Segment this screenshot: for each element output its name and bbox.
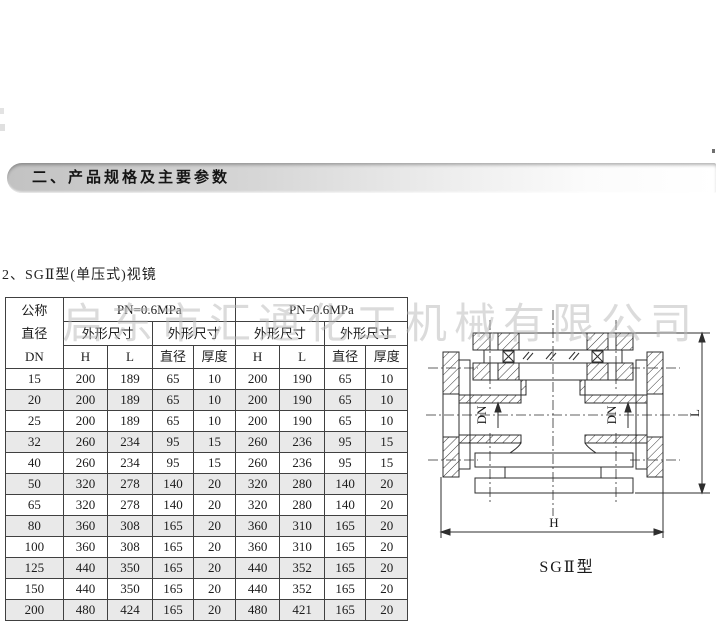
table-cell: 278	[108, 495, 153, 516]
table-cell: 480	[63, 600, 108, 621]
table-cell: 280	[280, 474, 325, 495]
table-cell: 310	[280, 516, 325, 537]
table-cell: 360	[63, 537, 108, 558]
table-cell: 95	[152, 453, 194, 474]
table-cell: 20	[366, 474, 408, 495]
table-header-row: 外形尺寸 外形尺寸 外形尺寸 外形尺寸	[6, 322, 408, 346]
table-cell: 20	[194, 600, 236, 621]
table-cell: 95	[152, 432, 194, 453]
table-cell: 20	[194, 579, 236, 600]
table-cell: 234	[108, 453, 153, 474]
table-cell: 308	[108, 537, 153, 558]
table-cell: 95	[324, 432, 366, 453]
table-cell: 350	[108, 558, 153, 579]
table-cell: 10	[194, 369, 236, 390]
table-cell: 440	[63, 579, 108, 600]
column-header-cell: 直径	[152, 346, 194, 369]
section-header-bar: 二、产品规格及主要参数	[7, 163, 716, 193]
table-cell: 421	[280, 600, 325, 621]
table-cell: 190	[280, 390, 325, 411]
table-cell: 10	[194, 390, 236, 411]
table-cell: 15	[366, 432, 408, 453]
table-cell: 236	[280, 432, 325, 453]
table-cell: 65	[152, 411, 194, 432]
table-cell: 65	[324, 411, 366, 432]
table-cell: 20	[194, 537, 236, 558]
table-cell: 32	[6, 432, 64, 453]
table-cell: 15	[194, 432, 236, 453]
dn-header-line: 公称	[6, 299, 63, 322]
table-cell: 50	[6, 474, 64, 495]
table-cell: 352	[280, 558, 325, 579]
table-row: 2004804241652048042116520	[6, 600, 408, 621]
table-cell: 125	[6, 558, 64, 579]
dn-header-cell: 公称 直径 DN	[6, 298, 64, 369]
table-cell: 234	[108, 432, 153, 453]
table-cell: 278	[108, 474, 153, 495]
table-cell: 95	[324, 453, 366, 474]
column-header-cell: H	[235, 346, 280, 369]
column-header-cell: L	[280, 346, 325, 369]
table-cell: 190	[280, 411, 325, 432]
table-cell: 20	[366, 495, 408, 516]
table-cell: 15	[6, 369, 64, 390]
table-cell: 200	[63, 411, 108, 432]
scan-artifact	[0, 124, 5, 131]
l-dim-label: L	[687, 409, 702, 417]
table-cell: 40	[6, 453, 64, 474]
column-header-cell: 厚度	[194, 346, 236, 369]
table-cell: 20	[366, 600, 408, 621]
table-cell: 200	[235, 390, 280, 411]
catalog-page: 二、产品规格及主要参数 2、SGⅡ型(单压式)视镜 启东市汇通化工机械有限公司 …	[0, 0, 716, 625]
table-cell: 165	[152, 579, 194, 600]
table-cell: 150	[6, 579, 64, 600]
table-cell: 200	[63, 369, 108, 390]
table-row: 4026023495152602369515	[6, 453, 408, 474]
table-cell: 20	[194, 516, 236, 537]
subgroup-header-cell: 外形尺寸	[324, 322, 407, 346]
table-cell: 65	[152, 390, 194, 411]
table-cell: 20	[366, 516, 408, 537]
table-cell: 165	[324, 516, 366, 537]
table-cell: 320	[63, 495, 108, 516]
technical-drawing: DN DN L H	[418, 298, 716, 553]
h-dim-label: H	[549, 515, 558, 530]
table-cell: 200	[235, 369, 280, 390]
table-cell: 20	[194, 474, 236, 495]
table-row: 1254403501652044035216520	[6, 558, 408, 579]
table-cell: 360	[235, 537, 280, 558]
table-cell: 440	[235, 579, 280, 600]
table-cell: 165	[324, 537, 366, 558]
table-header-row: 公称 直径 DN PN=0.6MPa PN=0.6MPa	[6, 298, 408, 322]
table-cell: 165	[324, 579, 366, 600]
table-cell: 440	[63, 558, 108, 579]
table-cell: 10	[194, 411, 236, 432]
dn-dim-label: DN	[474, 405, 489, 424]
table-cell: 190	[280, 369, 325, 390]
table-cell: 480	[235, 600, 280, 621]
dn-header-line: DN	[6, 345, 63, 368]
scan-artifact	[0, 108, 4, 114]
table-cell: 310	[280, 537, 325, 558]
table-cell: 65	[324, 369, 366, 390]
table-cell: 350	[108, 579, 153, 600]
table-cell: 200	[235, 411, 280, 432]
left-flange	[443, 352, 470, 477]
table-cell: 189	[108, 390, 153, 411]
scan-artifact	[712, 149, 715, 153]
table-cell: 165	[152, 516, 194, 537]
subgroup-header-cell: 外形尺寸	[235, 322, 324, 346]
table-cell: 65	[152, 369, 194, 390]
table-cell: 140	[152, 495, 194, 516]
table-cell: 260	[63, 453, 108, 474]
table-cell: 260	[235, 453, 280, 474]
table-cell: 260	[235, 432, 280, 453]
table-row: 653202781402032028014020	[6, 495, 408, 516]
table-header-row: H L 直径 厚度 H L 直径 厚度	[6, 346, 408, 369]
table-cell: 424	[108, 600, 153, 621]
table-cell: 352	[280, 579, 325, 600]
table-cell: 165	[324, 558, 366, 579]
table-cell: 440	[235, 558, 280, 579]
column-header-cell: L	[108, 346, 153, 369]
table-row: 1504403501652044035216520	[6, 579, 408, 600]
table-cell: 320	[63, 474, 108, 495]
table-cell: 165	[152, 600, 194, 621]
column-header-cell: H	[63, 346, 108, 369]
dn-header-line: 直径	[6, 322, 63, 345]
table-row: 3226023495152602369515	[6, 432, 408, 453]
table-cell: 20	[6, 390, 64, 411]
group-header-cell: PN=0.6MPa	[235, 298, 407, 322]
centerlines	[426, 310, 688, 516]
section-title: 二、产品规格及主要参数	[7, 163, 716, 193]
table-cell: 140	[324, 495, 366, 516]
subgroup-header-cell: 外形尺寸	[63, 322, 152, 346]
table-cell: 65	[324, 390, 366, 411]
table-cell: 20	[366, 558, 408, 579]
table-cell: 165	[152, 558, 194, 579]
table-cell: 260	[63, 432, 108, 453]
table-cell: 20	[194, 558, 236, 579]
table-cell: 320	[235, 495, 280, 516]
column-header-cell: 直径	[324, 346, 366, 369]
table-cell: 80	[6, 516, 64, 537]
table-cell: 236	[280, 453, 325, 474]
table-cell: 15	[366, 453, 408, 474]
table-cell: 20	[366, 579, 408, 600]
table-cell: 20	[366, 537, 408, 558]
table-cell: 140	[152, 474, 194, 495]
table-cell: 165	[152, 537, 194, 558]
table-cell: 10	[366, 390, 408, 411]
table-row: 2020018965102001906510	[6, 390, 408, 411]
table-cell: 140	[324, 474, 366, 495]
table-row: 2520018965102001906510	[6, 411, 408, 432]
right-flange	[636, 352, 663, 477]
table-cell: 189	[108, 369, 153, 390]
spec-table: 公称 直径 DN PN=0.6MPa PN=0.6MPa 外形尺寸 外形尺寸 外…	[5, 297, 408, 621]
drawing-label: SGⅡ型	[418, 553, 716, 577]
column-header-cell: 厚度	[366, 346, 408, 369]
table-cell: 200	[63, 390, 108, 411]
table-row: 803603081652036031016520	[6, 516, 408, 537]
table-cell: 360	[63, 516, 108, 537]
table-cell: 15	[194, 453, 236, 474]
table-cell: 360	[235, 516, 280, 537]
table-cell: 165	[324, 600, 366, 621]
table-row: 503202781402032028014020	[6, 474, 408, 495]
table-cell: 308	[108, 516, 153, 537]
table-cell: 320	[235, 474, 280, 495]
table-cell: 189	[108, 411, 153, 432]
table-row: 1520018965102001906510	[6, 369, 408, 390]
doc-subtitle: 2、SGⅡ型(单压式)视镜	[2, 264, 157, 284]
table-cell: 10	[366, 369, 408, 390]
table-cell: 100	[6, 537, 64, 558]
table-cell: 65	[6, 495, 64, 516]
dn-dim-label: DN	[604, 405, 619, 424]
table-cell: 10	[366, 411, 408, 432]
subgroup-header-cell: 外形尺寸	[152, 322, 235, 346]
table-row: 1003603081652036031016520	[6, 537, 408, 558]
group-header-cell: PN=0.6MPa	[63, 298, 235, 322]
table-cell: 200	[6, 600, 64, 621]
table-cell: 25	[6, 411, 64, 432]
table-cell: 20	[194, 495, 236, 516]
table-cell: 280	[280, 495, 325, 516]
